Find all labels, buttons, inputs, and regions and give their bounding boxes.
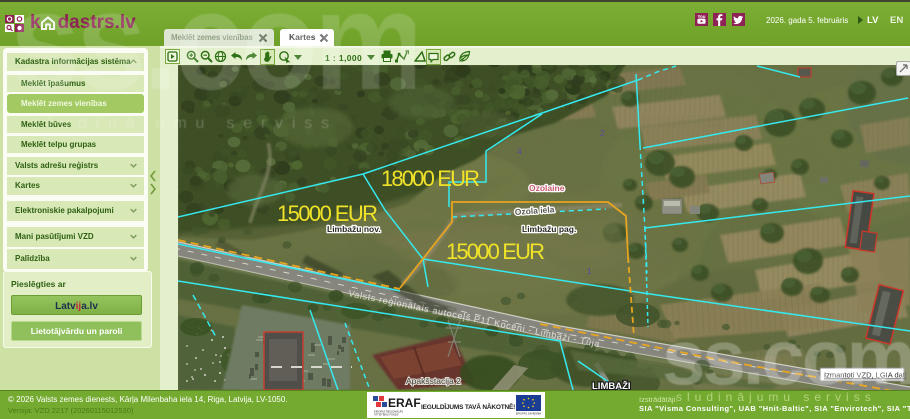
svg-text:Limbažu pag.: Limbažu pag. [522, 224, 576, 234]
svg-text:You: You [698, 14, 706, 19]
svg-text:LIMBAŽI: LIMBAŽI [592, 380, 631, 390]
svg-text:4: 4 [517, 146, 522, 156]
svg-text:ERAF: ERAF [388, 396, 421, 410]
svg-text:ATTĪSTĪBAS FONDS: ATTĪSTĪBAS FONDS [374, 413, 399, 417]
svg-text:Apakšstacija 2: Apakšstacija 2 [406, 376, 461, 386]
svg-text:2: 2 [600, 128, 605, 138]
svg-text:15000 EUR: 15000 EUR [446, 239, 545, 264]
svg-text:18000 EUR: 18000 EUR [381, 166, 480, 191]
svg-text:1: 1 [587, 266, 592, 276]
svg-text:EIROPAS SAVIENĪBA: EIROPAS SAVIENĪBA [516, 412, 541, 416]
svg-text:Ozolaine: Ozolaine [529, 183, 565, 193]
svg-text:15000 EUR: 15000 EUR [277, 201, 378, 226]
